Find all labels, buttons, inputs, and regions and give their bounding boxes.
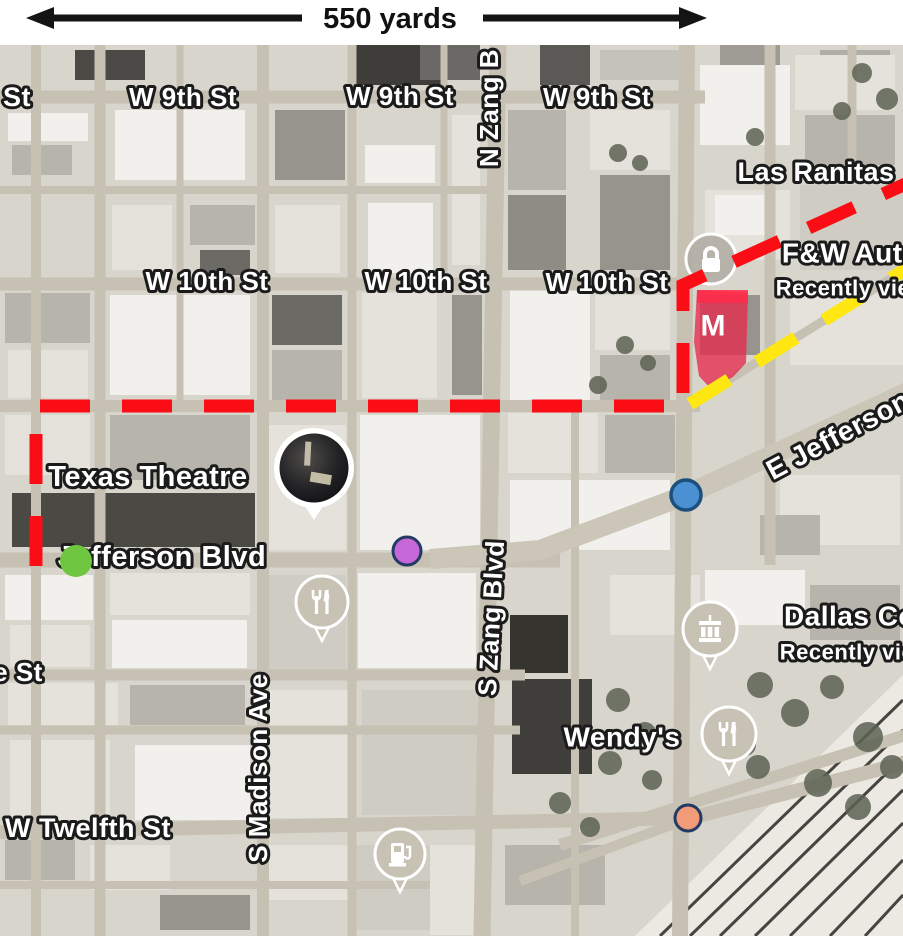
- street-label-w9th-3: W 9th St: [543, 82, 651, 112]
- street-label-w9th-1: W 9th St: [129, 82, 237, 112]
- poi-label-texas-theatre[interactable]: Texas Theatre: [48, 461, 247, 493]
- street-label-w9th-2: W 9th St: [346, 81, 454, 111]
- street-label-w10th-3: W 10th St: [546, 267, 669, 297]
- poi-label-dallas-co[interactable]: Dallas Co: [784, 601, 903, 632]
- scale-arrow-right: [483, 7, 707, 29]
- scale-arrow-left: [26, 7, 302, 29]
- poi-sublabel-recently-viewed-1[interactable]: Recently vie: [776, 276, 903, 301]
- salmon-dot: [675, 805, 701, 831]
- street-label-w-twelfth: W Twelfth St: [5, 813, 171, 843]
- green-dot: [60, 545, 92, 577]
- poi-label-fw-auto[interactable]: F&W Auto: [782, 238, 903, 269]
- scale-label: 550 yards: [323, 3, 457, 35]
- poi-label-las-ranitas[interactable]: Las Ranitas: [737, 157, 894, 187]
- pin-circle: [702, 707, 756, 761]
- street-label-st-fragment-top: St: [3, 82, 31, 112]
- m-marker-label: M: [701, 310, 726, 343]
- street-label-s-madison: S Madison Ave: [243, 673, 273, 863]
- m-marker-top: [697, 290, 748, 303]
- blue-dot: [671, 480, 701, 510]
- theatre-photo-icon: [280, 434, 349, 503]
- street-label-w10th-2: W 10th St: [365, 266, 488, 296]
- map-screenshot: 550 yards: [0, 0, 903, 936]
- scale-bar: 550 yards: [0, 0, 903, 45]
- satellite-map[interactable]: M StW 9th StW 9th StW 9th StN Zang BW 10…: [0, 45, 903, 936]
- poi-sublabel-recently-viewed-2[interactable]: Recently vie: [780, 640, 903, 665]
- theatre-sign-detail: [304, 442, 311, 466]
- street-label-e-st-fragment: e St: [0, 657, 43, 687]
- magenta-dot: [393, 537, 421, 565]
- street-label-w10th-1: W 10th St: [146, 266, 269, 296]
- pin-circle: [296, 576, 348, 628]
- street-label-n-zang: N Zang B: [474, 49, 504, 167]
- poi-label-wendys[interactable]: Wendy's: [563, 722, 680, 753]
